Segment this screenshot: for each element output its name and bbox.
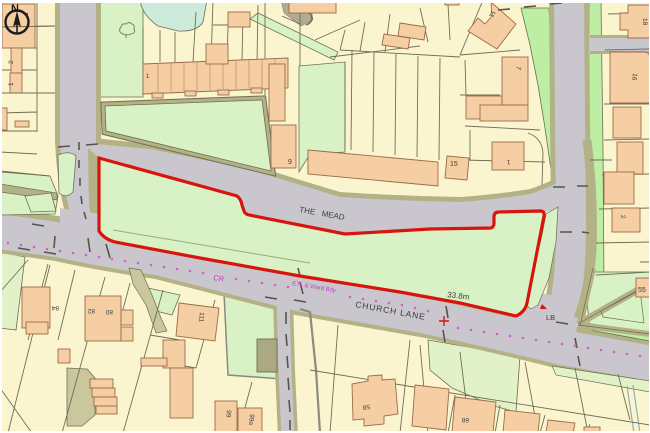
- svg-text:15: 15: [450, 161, 458, 168]
- svg-text:LB: LB: [546, 313, 555, 322]
- svg-text:80: 80: [105, 308, 113, 315]
- svg-text:84: 84: [51, 304, 59, 311]
- svg-text:18: 18: [641, 18, 648, 26]
- svg-text:CR: CR: [213, 273, 226, 284]
- svg-text:99: 99: [224, 410, 232, 418]
- svg-text:99a: 99a: [247, 414, 255, 426]
- svg-text:N: N: [11, 3, 19, 15]
- svg-text:55: 55: [638, 287, 646, 294]
- svg-text:1: 1: [8, 82, 15, 86]
- svg-text:16: 16: [630, 73, 638, 81]
- svg-text:82: 82: [87, 307, 95, 314]
- svg-text:2: 2: [8, 60, 15, 64]
- svg-text:9: 9: [288, 159, 292, 166]
- svg-text:111: 111: [197, 312, 205, 323]
- svg-text:68: 68: [461, 416, 469, 423]
